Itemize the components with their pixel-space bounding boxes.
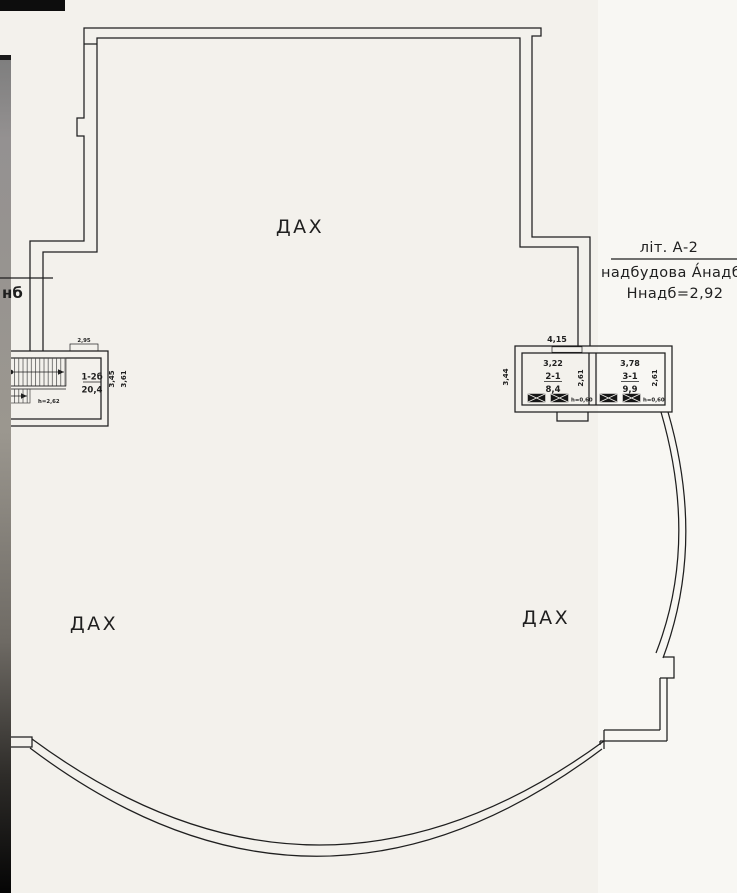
- paper-right-margin: [598, 0, 737, 893]
- scanned-roof-plan-page: 2,95 1-2б 20,4 3,45 3,61 h=2,62 4,15 3,4…: [0, 0, 737, 893]
- room-a-number: 2-1: [545, 372, 560, 382]
- room-b-depth: 2,61: [651, 369, 659, 386]
- callout-line2: надбудова А́надб: [601, 262, 737, 281]
- stairwell-unit-number: 1-2б: [81, 372, 102, 383]
- room-a-width: 3,22: [543, 359, 563, 368]
- stairwell-dim-side-outer: 3,61: [120, 370, 128, 387]
- scan-gutter-shadow: [0, 55, 11, 893]
- stairwell-dim-top: 2,95: [77, 338, 91, 344]
- roof-plan-canvas: 2,95 1-2б 20,4 3,45 3,61 h=2,62 4,15 3,4…: [0, 0, 737, 893]
- room-b-window-note: h=0,60: [643, 398, 665, 404]
- roof-label-top: ДАХ: [276, 216, 324, 238]
- callout-line1: літ. А-2: [640, 240, 699, 256]
- roof-label-left: ДАХ: [70, 613, 118, 635]
- room-b-area: 9,9: [622, 385, 637, 395]
- room-b-number: 3-1: [622, 372, 637, 382]
- room-b-width: 3,78: [620, 359, 640, 368]
- callout-line3: Ннадб=2,92: [627, 286, 724, 302]
- stairwell-dim-side-inner: 3,45: [108, 370, 116, 387]
- roof-label-right: ДАХ: [522, 607, 570, 629]
- stairwell-height-note: h=2,62: [38, 399, 60, 405]
- room-a-window-note: h=0,60: [571, 398, 593, 404]
- room-a-area: 8,4: [545, 385, 560, 395]
- scan-top-left-black-bar: [0, 0, 65, 11]
- room-a-depth: 2,61: [577, 369, 585, 386]
- edge-cropped-label: нб: [2, 284, 23, 302]
- annex-dim-left: 3,44: [502, 368, 510, 385]
- scan-gutter-dark-top: [0, 55, 11, 60]
- stairwell-area: 20,4: [82, 386, 103, 396]
- annex-dim-top: 4,15: [547, 335, 567, 344]
